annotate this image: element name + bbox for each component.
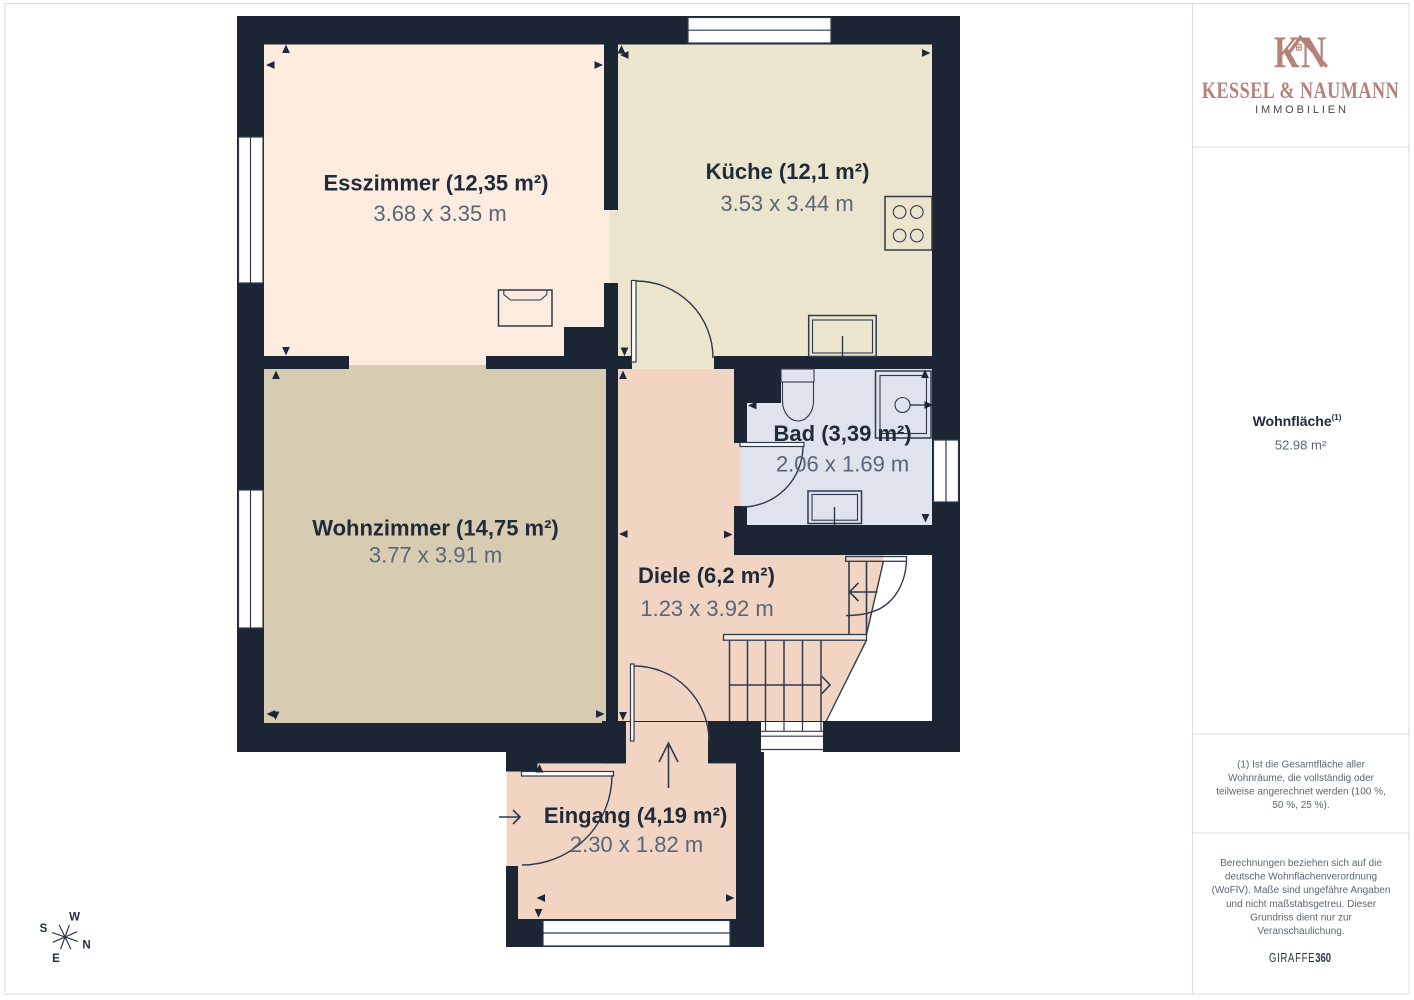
svg-text:Esszimmer (12,35 m²): Esszimmer (12,35 m²): [324, 171, 549, 196]
svg-text:Grundriss dient nur zur: Grundriss dient nur zur: [1250, 912, 1352, 923]
svg-text:2.06 x 1.69 m: 2.06 x 1.69 m: [776, 451, 909, 476]
svg-text:Bad (3,39 m²): Bad (3,39 m²): [774, 421, 912, 446]
svg-text:3.68 x 3.35 m: 3.68 x 3.35 m: [373, 201, 506, 226]
svg-text:Eingang (4,19 m²): Eingang (4,19 m²): [544, 803, 727, 828]
svg-text:Wohnräume, die vollständig ode: Wohnräume, die vollständig oder: [1228, 773, 1375, 784]
svg-text:E: E: [52, 953, 60, 965]
svg-text:KESSEL & NAUMANN: KESSEL & NAUMANN: [1202, 79, 1399, 103]
svg-text:2.30 x 1.82 m: 2.30 x 1.82 m: [570, 832, 703, 857]
svg-text:W: W: [69, 912, 80, 924]
svg-text:deutsche Wohnflächenverordnung: deutsche Wohnflächenverordnung: [1225, 872, 1377, 883]
svg-text:(WoFlV). Maße sind ungefähre A: (WoFlV). Maße sind ungefähre Angaben: [1212, 885, 1391, 896]
svg-text:3.53 x 3.44 m: 3.53 x 3.44 m: [720, 191, 853, 216]
svg-text:Berechnungen beziehen sich auf: Berechnungen beziehen sich auf die: [1220, 858, 1382, 869]
svg-text:GIRAFFE360: GIRAFFE360: [1269, 952, 1331, 966]
svg-text:K: K: [1274, 26, 1300, 78]
svg-text:(1) Ist die Gesamtfläche aller: (1) Ist die Gesamtfläche aller: [1237, 760, 1365, 771]
svg-text:Diele (6,2 m²): Diele (6,2 m²): [638, 563, 775, 588]
svg-text:Wohnfläche(1): Wohnfläche(1): [1253, 413, 1342, 429]
svg-text:Küche (12,1 m²): Küche (12,1 m²): [706, 159, 870, 184]
svg-text:Veranschaulichung.: Veranschaulichung.: [1257, 926, 1344, 937]
svg-text:und nicht maßstabsgetreu. Dies: und nicht maßstabsgetreu. Dieser: [1226, 899, 1377, 910]
svg-text:50 %, 25 %).: 50 %, 25 %).: [1272, 800, 1329, 811]
svg-text:Wohnzimmer (14,75 m²): Wohnzimmer (14,75 m²): [312, 516, 559, 541]
svg-text:1.23 x 3.92 m: 1.23 x 3.92 m: [640, 596, 773, 621]
svg-text:teilweise angerechnet werden (: teilweise angerechnet werden (100 %,: [1216, 787, 1386, 798]
svg-text:S: S: [40, 923, 48, 935]
svg-text:IMMOBILIEN: IMMOBILIEN: [1255, 104, 1349, 116]
svg-text:3.77 x 3.91 m: 3.77 x 3.91 m: [369, 542, 502, 567]
svg-text:52.98 m²: 52.98 m²: [1275, 438, 1327, 453]
svg-text:N: N: [82, 940, 90, 952]
